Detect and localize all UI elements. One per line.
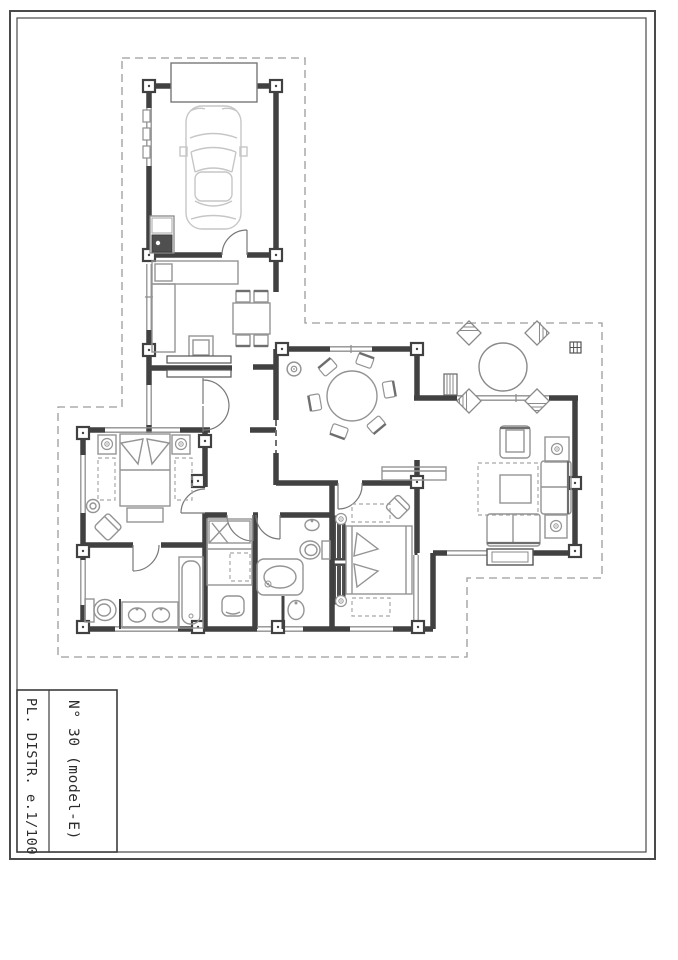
project-number-label: N° 30 (model-E) xyxy=(65,700,81,840)
vent-slit xyxy=(143,128,150,140)
room-ensuite-bathroom xyxy=(86,548,202,626)
patio-table-icon xyxy=(479,343,527,391)
fireplace-icon xyxy=(487,549,533,565)
window-icon xyxy=(330,345,372,353)
window-icon xyxy=(414,555,418,625)
garage-door-icon xyxy=(171,63,257,102)
window-icon xyxy=(105,428,180,432)
table-lamp-icon xyxy=(552,444,563,455)
window-icon xyxy=(447,551,487,555)
drawing-sheet: PL. DISTR. e.1/100 N° 30 (model-E) xyxy=(0,0,678,960)
nightstand-lamp-icon xyxy=(336,596,347,607)
nightstand-lamp-icon xyxy=(336,514,347,525)
nightstand-lamp-icon xyxy=(102,439,113,450)
table-lamp-icon xyxy=(551,521,562,532)
room-master-bedroom xyxy=(86,433,202,542)
vent-slit xyxy=(143,110,150,122)
vent-slit xyxy=(143,146,150,158)
ceiling-light-icon xyxy=(287,362,301,376)
floor-plan-svg: PL. DISTR. e.1/100 N° 30 (model-E) xyxy=(0,0,678,960)
room-living-room xyxy=(420,401,572,550)
room-entry-hall xyxy=(152,371,273,427)
step xyxy=(167,356,231,363)
wardrobe-icon xyxy=(334,516,345,604)
sheet-label: PL. DISTR. e.1/100 xyxy=(23,698,39,855)
nightstand-lamp-icon xyxy=(176,439,187,450)
water-heater-icon xyxy=(150,216,174,253)
window-icon xyxy=(147,385,151,425)
step xyxy=(167,370,231,377)
title-block: PL. DISTR. e.1/100 N° 30 (model-E) xyxy=(17,690,117,855)
